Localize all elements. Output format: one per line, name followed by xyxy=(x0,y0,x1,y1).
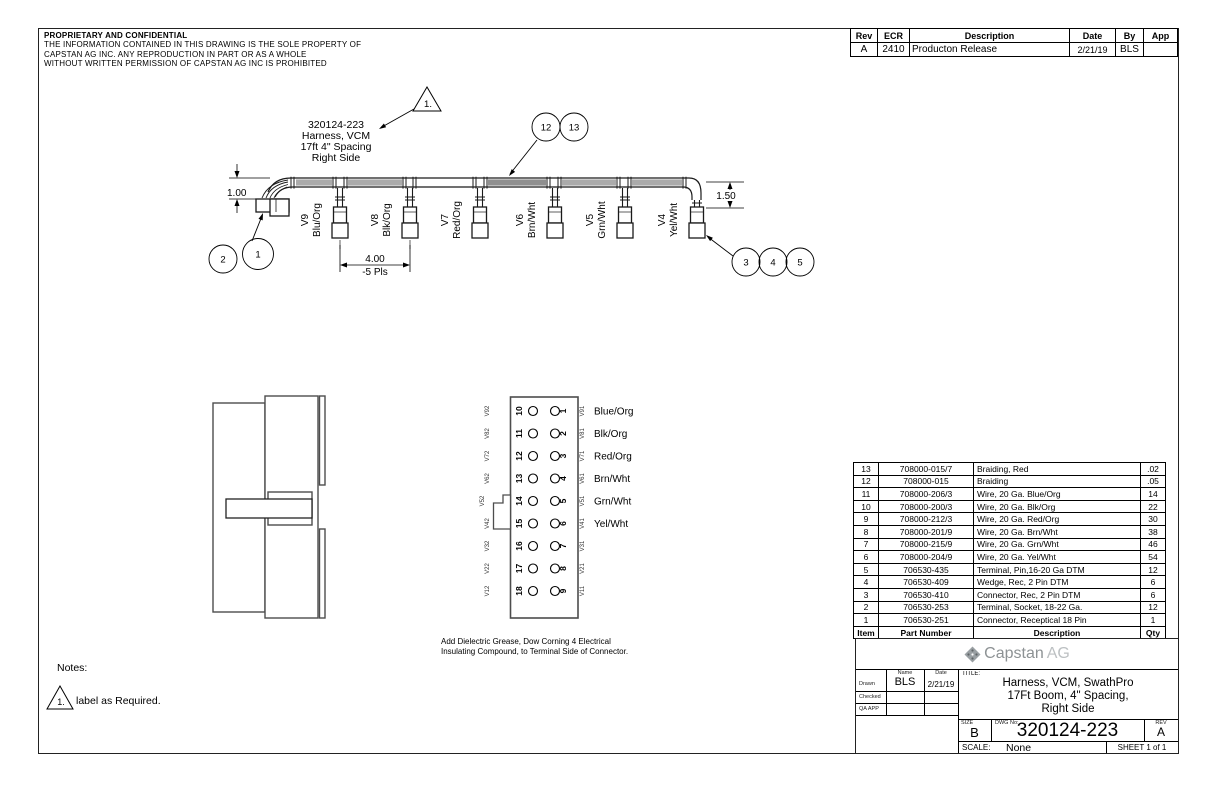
pin-number: 3 xyxy=(558,453,568,458)
dimension-4-00: 4.00 -5 Pls xyxy=(340,245,410,278)
drawn-date: 2/21/19 xyxy=(924,680,958,689)
circuit-label: V72 xyxy=(485,450,491,461)
bom-part: 708000-204/9 xyxy=(879,551,974,564)
drop-color-label: Red/Org xyxy=(452,201,463,239)
bom-item: 7 xyxy=(854,538,879,551)
logo-text-capstan: Capstan xyxy=(984,645,1044,663)
bom-qty: 1 xyxy=(1141,614,1166,627)
pin-number: 4 xyxy=(558,476,568,481)
balloon-2-label: 2 xyxy=(220,254,225,265)
pin-number: 5 xyxy=(558,498,568,503)
balloon-3-label: 3 xyxy=(743,257,748,268)
circuit-label: V22 xyxy=(485,563,491,574)
right-circuit-labels: V91 V81 V71 V61 V51 V41 V31 V21 V11 xyxy=(580,405,586,596)
bom-item: 2 xyxy=(854,601,879,614)
bom-part-header: Part Number xyxy=(879,626,974,639)
bom-part: 706530-435 xyxy=(879,563,974,576)
notes-title: Notes: xyxy=(57,662,87,674)
connector-side-view xyxy=(213,396,325,618)
wire-color: Red/Org xyxy=(594,452,632,463)
drawing-title-line2: 17Ft Boom, 4" Spacing, xyxy=(958,690,1178,702)
capstan-diamond-icon xyxy=(964,646,981,663)
bom-part: 708000-201/9 xyxy=(879,525,974,538)
pin-number: 1 xyxy=(558,408,568,413)
bom-item: 4 xyxy=(854,576,879,589)
harness-label-block: 320124-223 Harness, VCM 17ft 4" Spacing … xyxy=(301,119,372,164)
bom-description: Wire, 20 Ga. Blue/Org xyxy=(974,488,1141,501)
circuit-label: V31 xyxy=(580,540,586,551)
main-connector-18pin xyxy=(256,199,289,216)
circuit-label: V41 xyxy=(580,518,586,529)
bom-row: 11708000-206/3Wire, 20 Ga. Blue/Org14 xyxy=(854,488,1166,501)
right-pin-numbers: 1 2 3 4 5 6 7 8 9 xyxy=(558,408,568,593)
pin-number: 6 xyxy=(558,521,568,526)
pin-number: 7 xyxy=(558,543,568,548)
bom-description: Wire, 20 Ga. Blk/Org xyxy=(974,500,1141,513)
bom-qty: 14 xyxy=(1141,488,1166,501)
flag-number: 1. xyxy=(424,99,432,110)
pin-number: 18 xyxy=(514,586,524,596)
circuit-label: V42 xyxy=(485,518,491,529)
bom-qty: 54 xyxy=(1141,551,1166,564)
bom-part: 708000-200/3 xyxy=(879,500,974,513)
bom-item: 3 xyxy=(854,588,879,601)
bom-item: 11 xyxy=(854,488,879,501)
harness-side: Right Side xyxy=(312,152,361,164)
circuit-label: V82 xyxy=(485,428,491,439)
titleblock-line xyxy=(856,703,958,704)
bom-qty: 12 xyxy=(1141,601,1166,614)
pin-number: 2 xyxy=(558,431,568,436)
circuit-label: V71 xyxy=(580,450,586,461)
pin-number: 17 xyxy=(514,564,524,574)
drop-color-label: Yel/Wht xyxy=(669,203,680,237)
bom-item: 6 xyxy=(854,551,879,564)
size-value: B xyxy=(958,725,991,740)
bom-description: Wire, 20 Ga. Grn/Wht xyxy=(974,538,1141,551)
bom-description: Terminal, Socket, 18-22 Ga. xyxy=(974,601,1141,614)
note-1-text: label as Required. xyxy=(76,695,161,707)
balloon-1-label: 1 xyxy=(255,249,260,260)
bom-row: 10708000-200/3Wire, 20 Ga. Blk/Org22 xyxy=(854,500,1166,513)
qa-app-label: QA APP xyxy=(859,706,879,712)
circuit-label: V21 xyxy=(580,563,586,574)
wire-color: Yel/Wht xyxy=(594,519,628,530)
dielectric-note-line2: Insulating Compound, to Terminal Side of… xyxy=(441,647,628,656)
drop-color-label: Brn/Wht xyxy=(527,202,538,238)
pin-number: 10 xyxy=(514,406,524,416)
company-logo: CapstanAG xyxy=(856,639,1178,670)
dim-spacing: 4.00 xyxy=(365,254,385,265)
bom-description: Wire, 20 Ga. Yel/Wht xyxy=(974,551,1141,564)
bom-item-header: Item xyxy=(854,626,879,639)
dimension-1-50: 1.50 xyxy=(706,182,744,208)
bom-row: 9708000-212/3Wire, 20 Ga. Red/Org30 xyxy=(854,513,1166,526)
bom-qty: 22 xyxy=(1141,500,1166,513)
bom-qty: 46 xyxy=(1141,538,1166,551)
bom-part: 708000-015 xyxy=(879,475,974,488)
pin-diagram: 10 11 12 13 14 15 16 17 18 1 2 3 4 5 6 7… xyxy=(480,397,633,618)
bom-header-row: Item Part Number Description Qty xyxy=(854,626,1166,639)
wire-color: Blue/Org xyxy=(594,407,633,418)
bom-qty: 6 xyxy=(1141,576,1166,589)
dwg-no-value: 320124-223 xyxy=(991,720,1144,742)
date-column-header: Date xyxy=(924,670,958,676)
circuit-label: V61 xyxy=(580,473,586,484)
connector-key-notch xyxy=(494,495,511,529)
pin-number: 15 xyxy=(514,519,524,529)
bom-description-header: Description xyxy=(974,626,1141,639)
bom-description: Braiding xyxy=(974,475,1141,488)
drop-v7 xyxy=(472,188,488,238)
circuit-label: V51 xyxy=(580,495,586,506)
bom-item: 10 xyxy=(854,500,879,513)
circuit-label: V91 xyxy=(580,405,586,416)
bom-description: Braiding, Red xyxy=(974,463,1141,476)
bom-part: 708000-206/3 xyxy=(879,488,974,501)
circuit-label: V81 xyxy=(580,428,586,439)
sheet-number: SHEET 1 of 1 xyxy=(1106,743,1178,752)
circuit-label: V62 xyxy=(485,473,491,484)
bom-description: Wire, 20 Ga. Brn/Wht xyxy=(974,525,1141,538)
left-circuit-labels: V92 V82 V72 V62 V52 V42 V32 V22 V12 xyxy=(480,405,491,596)
bom-description: Connector, Rec, 2 Pin DTM xyxy=(974,588,1141,601)
scale-label: SCALE: xyxy=(962,743,990,752)
pin-number: 9 xyxy=(558,588,568,593)
drop-v4 xyxy=(689,200,705,238)
bom-qty: 38 xyxy=(1141,525,1166,538)
circuit-label: V32 xyxy=(485,540,491,551)
balloon-4-label: 4 xyxy=(770,257,775,268)
flag-note-1: 1. xyxy=(379,87,441,129)
title-block: CapstanAG Name Date Drawn BLS 2/21/19 Ch… xyxy=(855,638,1179,754)
drawing-title-line1: Harness, VCM, SwathPro xyxy=(958,677,1178,689)
bom-row: 7708000-215/9Wire, 20 Ga. Grn/Wht46 xyxy=(854,538,1166,551)
note-flag-number: 1. xyxy=(57,697,65,707)
bom-part: 708000-015/7 xyxy=(879,463,974,476)
balloon-5-label: 5 xyxy=(797,257,802,268)
wire-color-labels: Blue/Org Blk/Org Red/Org Brn/Wht Grn/Wht… xyxy=(594,407,633,531)
balloon-13-label: 13 xyxy=(569,122,580,133)
dim-left-height: 1.00 xyxy=(227,188,247,199)
drop-id-label: V6 xyxy=(515,213,526,226)
bom-qty: 6 xyxy=(1141,588,1166,601)
scale-value: None xyxy=(1006,742,1031,754)
bom-row: 3706530-410Connector, Rec, 2 Pin DTM6 xyxy=(854,588,1166,601)
drop-color-label: Grn/Wht xyxy=(597,201,608,238)
drop-v9 xyxy=(332,188,348,249)
drop-id-label: V8 xyxy=(370,213,381,226)
bom-qty: 30 xyxy=(1141,513,1166,526)
bom-qty: .02 xyxy=(1141,463,1166,476)
drawing-sheet: PROPRIETARY AND CONFIDENTIAL THE INFORMA… xyxy=(0,0,1224,792)
logo-text-ag: AG xyxy=(1047,645,1070,663)
pin-number: 14 xyxy=(514,496,524,506)
bom-row: 4706530-409Wedge, Rec, 2 Pin DTM6 xyxy=(854,576,1166,589)
pin-circles xyxy=(529,407,560,596)
bom-row: 2706530-253Terminal, Socket, 18-22 Ga.12 xyxy=(854,601,1166,614)
bom-part: 706530-410 xyxy=(879,588,974,601)
drop-id-label: V9 xyxy=(300,213,311,226)
circuit-label: V12 xyxy=(485,585,491,596)
pin-number: 16 xyxy=(514,541,524,551)
drawing-title-line3: Right Side xyxy=(958,703,1178,715)
dim-right-height: 1.50 xyxy=(716,191,736,202)
titleblock-line xyxy=(856,715,958,716)
bom-qty: .05 xyxy=(1141,475,1166,488)
pin-number: 13 xyxy=(514,474,524,484)
bom-qty: 12 xyxy=(1141,563,1166,576)
drawn-name: BLS xyxy=(886,676,924,688)
pin-number: 11 xyxy=(514,429,524,438)
drop-v8 xyxy=(402,188,418,249)
rev-value: A xyxy=(1144,725,1178,739)
drop-color-label: Blk/Org xyxy=(382,203,393,236)
bom-part: 708000-212/3 xyxy=(879,513,974,526)
bom-item: 8 xyxy=(854,525,879,538)
bom-item: 9 xyxy=(854,513,879,526)
bom-table: 13708000-015/7Braiding, Red.02 12708000-… xyxy=(853,462,1166,639)
wire-color: Blk/Org xyxy=(594,429,627,440)
bom-item: 1 xyxy=(854,614,879,627)
bom-description: Connector, Receptical 18 Pin xyxy=(974,614,1141,627)
bom-item: 12 xyxy=(854,475,879,488)
bom-part: 708000-215/9 xyxy=(879,538,974,551)
wire-color: Grn/Wht xyxy=(594,497,631,508)
drop-id-label: V5 xyxy=(585,213,596,226)
bom-description: Wedge, Rec, 2 Pin DTM xyxy=(974,576,1141,589)
bom-row: 5706530-435Terminal, Pin,16-20 Ga DTM12 xyxy=(854,563,1166,576)
bom-part: 706530-409 xyxy=(879,576,974,589)
drop-id-label: V4 xyxy=(657,213,668,226)
dielectric-note: Add Dielectric Grease, Dow Corning 4 Ele… xyxy=(441,637,628,656)
bom-row: 12708000-015Braiding.05 xyxy=(854,475,1166,488)
circuit-label: V11 xyxy=(580,585,586,596)
bom-row: 13708000-015/7Braiding, Red.02 xyxy=(854,463,1166,476)
balloon-12-label: 12 xyxy=(541,122,552,133)
bom-row: 1706530-251Connector, Receptical 18 Pin1 xyxy=(854,614,1166,627)
pin-number: 8 xyxy=(558,566,568,571)
circuit-label: V92 xyxy=(485,405,491,416)
pin-number: 12 xyxy=(514,451,524,461)
titleblock-line xyxy=(856,691,958,692)
checked-label: Checked xyxy=(859,694,881,700)
circuit-label: V52 xyxy=(480,495,486,506)
drop-v5 xyxy=(617,188,633,238)
drop-v6 xyxy=(547,188,563,238)
drop-id-label: V7 xyxy=(440,213,451,226)
notes-block: Notes: 1. label as Required. xyxy=(47,662,161,709)
bom-description: Wire, 20 Ga. Red/Org xyxy=(974,513,1141,526)
bom-qty-header: Qty xyxy=(1141,626,1166,639)
drawn-label: Drawn xyxy=(859,681,875,687)
left-pin-numbers: 10 11 12 13 14 15 16 17 18 xyxy=(514,406,524,596)
bom-part: 706530-251 xyxy=(879,614,974,627)
bom-row: 8708000-201/9Wire, 20 Ga. Brn/Wht38 xyxy=(854,525,1166,538)
bom-row: 6708000-204/9Wire, 20 Ga. Yel/Wht54 xyxy=(854,551,1166,564)
wire-color: Brn/Wht xyxy=(594,474,630,485)
bom-description: Terminal, Pin,16-20 Ga DTM xyxy=(974,563,1141,576)
dim-spacing-note: -5 Pls xyxy=(362,267,388,278)
drop-color-label: Blu/Org xyxy=(312,203,323,237)
bom-item: 5 xyxy=(854,563,879,576)
dielectric-note-line1: Add Dielectric Grease, Dow Corning 4 Ele… xyxy=(441,637,611,646)
bom-item: 13 xyxy=(854,463,879,476)
bom-part: 706530-253 xyxy=(879,601,974,614)
